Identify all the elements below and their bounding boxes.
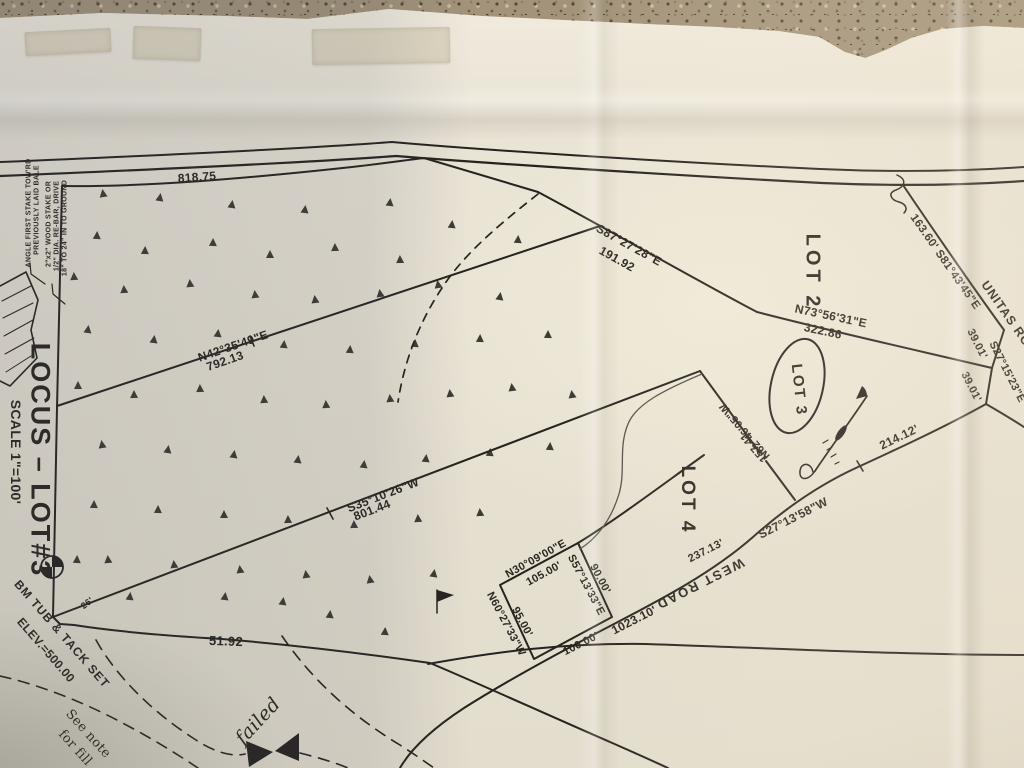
bearing-label: S27°13'58"W [756,495,830,542]
tape-piece [24,28,111,56]
distance-label: 818.75 [177,169,216,186]
lot2-label: LOT 2 [801,234,824,311]
distance-label: 26' [79,595,95,611]
label-layer: ANGLE FIRST STAKE TOW'RDPREVIOUSLY LAID … [0,0,1024,768]
distance-label: 100.00' [561,630,601,658]
locus-title: LOCUS – LOT#3 [25,343,56,578]
stake-note-line: 2"x2" WOOD STAKE OR [46,181,53,267]
bearing-label: S27°15'23"E [986,339,1024,404]
tape-piece [132,26,201,61]
survey-map-photo: ANGLE FIRST STAKE TOW'RDPREVIOUSLY LAID … [0,0,1024,768]
distance-label: 39.01' [958,370,983,404]
distance-label: 1023.10' [609,603,659,638]
stake-note-line: PREVIOUSLY LAID BALE [34,165,41,255]
bearing-label: 163.60' S81°43'45"E [908,212,983,312]
failed-note: failed [231,693,285,749]
stake-note-line: 18" TO 24" IN TO GROUND [62,180,69,276]
west-road-label: WEST ROAD [653,555,747,613]
tape-piece [312,27,451,65]
stake-note-line: ANGLE FIRST STAKE TOW'RD [26,159,33,268]
lot3-label: LOT 3 [788,363,810,417]
stake-note-line: 1/2" DIA. RE-BAR, DRIVE [54,181,61,271]
lot4-label: LOT 4 [676,466,698,535]
distance-label: 214.12' [877,422,921,453]
distance-label: 51.92 [209,633,244,649]
scale-note: SCALE 1"=100' [8,400,24,505]
distance-label: 237.13' [686,537,726,565]
